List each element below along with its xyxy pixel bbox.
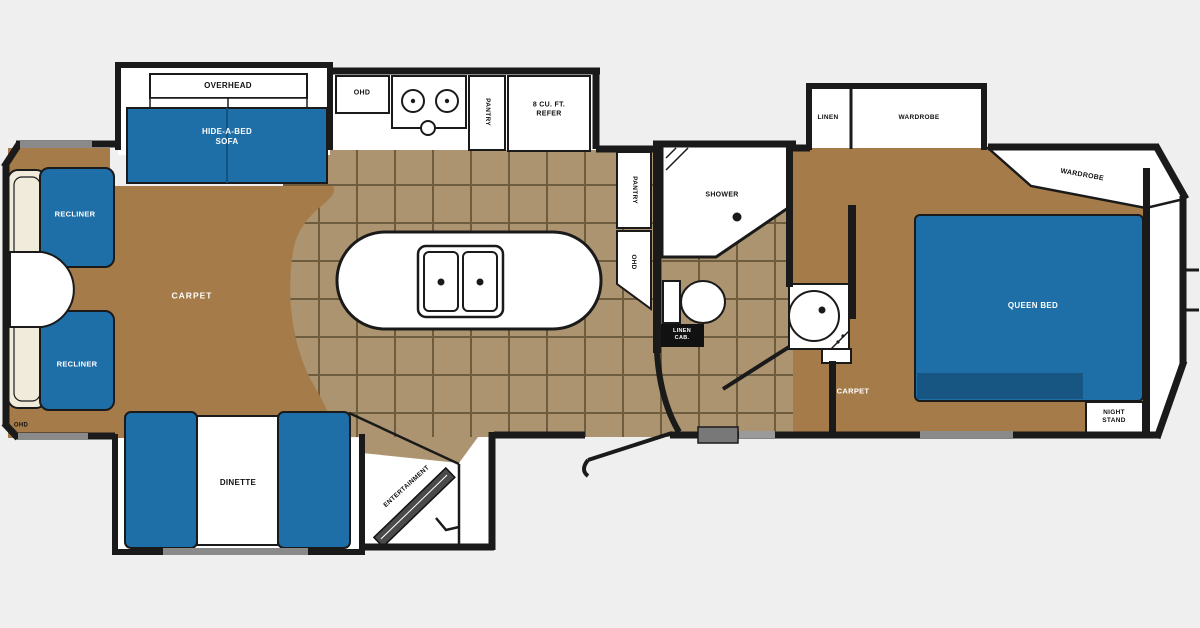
hitch-pin-icon	[1186, 270, 1199, 310]
night-stand-label: NIGHT STAND	[1102, 409, 1125, 425]
kitchen-ohd-label: OHD	[354, 90, 370, 99]
toilet-tank-icon	[663, 281, 680, 323]
floorplan-drawing	[0, 0, 1200, 628]
toilet-icon	[681, 281, 725, 323]
rear-ohd-label: OHD	[14, 422, 28, 430]
recliner-bottom-label: RECLINER	[57, 359, 98, 368]
slide-marker	[920, 431, 1013, 438]
bath-sink-icon	[789, 291, 839, 341]
bath-right-wall	[786, 144, 793, 287]
sink-drain-dot	[477, 279, 484, 286]
bathroom-door	[723, 347, 789, 389]
curved-half-wall	[657, 352, 679, 432]
vanity-right-wall	[848, 205, 856, 319]
shower-stall	[662, 146, 791, 257]
vanity-dot	[836, 340, 839, 343]
slide-marker	[18, 433, 88, 440]
burner-dot	[445, 99, 449, 103]
bath-left-wall	[653, 141, 661, 353]
bath-faucet-dot	[819, 307, 826, 314]
tall-ohd-label: OHD	[629, 254, 637, 269]
shower-label: SHOWER	[705, 192, 738, 201]
overhead-label: OVERHEAD	[204, 81, 252, 91]
kitchen-pantry-label: PANTRY	[483, 98, 491, 126]
slide-marker	[163, 548, 308, 555]
living-carpet-label: CARPET	[172, 291, 213, 302]
tall-ohd-cabinet	[617, 231, 651, 309]
bedroom-step-wall	[829, 361, 836, 435]
dinette-bench-left	[125, 412, 197, 548]
refrigerator-label: 8 CU. FT. REFER	[533, 101, 565, 119]
linen-label: LINEN	[818, 114, 839, 122]
end-table	[10, 252, 74, 327]
slide-marker	[739, 431, 775, 438]
recliner-top-label: RECLINER	[55, 209, 96, 218]
burner-dot	[411, 99, 415, 103]
sofa-label: HIDE-A-BED SOFA	[202, 127, 252, 147]
queen-bed-label: QUEEN BED	[1008, 301, 1058, 311]
stove-knob-icon	[421, 121, 435, 135]
shower-drain-icon	[733, 213, 742, 222]
sink-drain-dot	[438, 279, 445, 286]
floorplan: OVERHEAD HIDE-A-BED SOFA RECLINER RECLIN…	[0, 0, 1200, 628]
bedroom-carpet-label: CARPET	[837, 386, 870, 395]
linen-cab-label: LINEN CAB.	[673, 328, 691, 342]
dinette-label: DINETTE	[220, 478, 256, 488]
wardrobe-slide-label: WARDROBE	[898, 114, 939, 122]
vanity-lower-cabinet	[822, 349, 851, 363]
tall-pantry-label: PANTRY	[630, 176, 638, 204]
front-cap-wall	[1143, 168, 1150, 436]
dinette-bench-right	[278, 412, 350, 548]
entry-steps	[698, 427, 738, 443]
entry-door	[584, 433, 672, 476]
vanity-dot	[841, 334, 844, 337]
slide-marker	[20, 141, 92, 148]
queen-bed-foot	[917, 373, 1083, 399]
